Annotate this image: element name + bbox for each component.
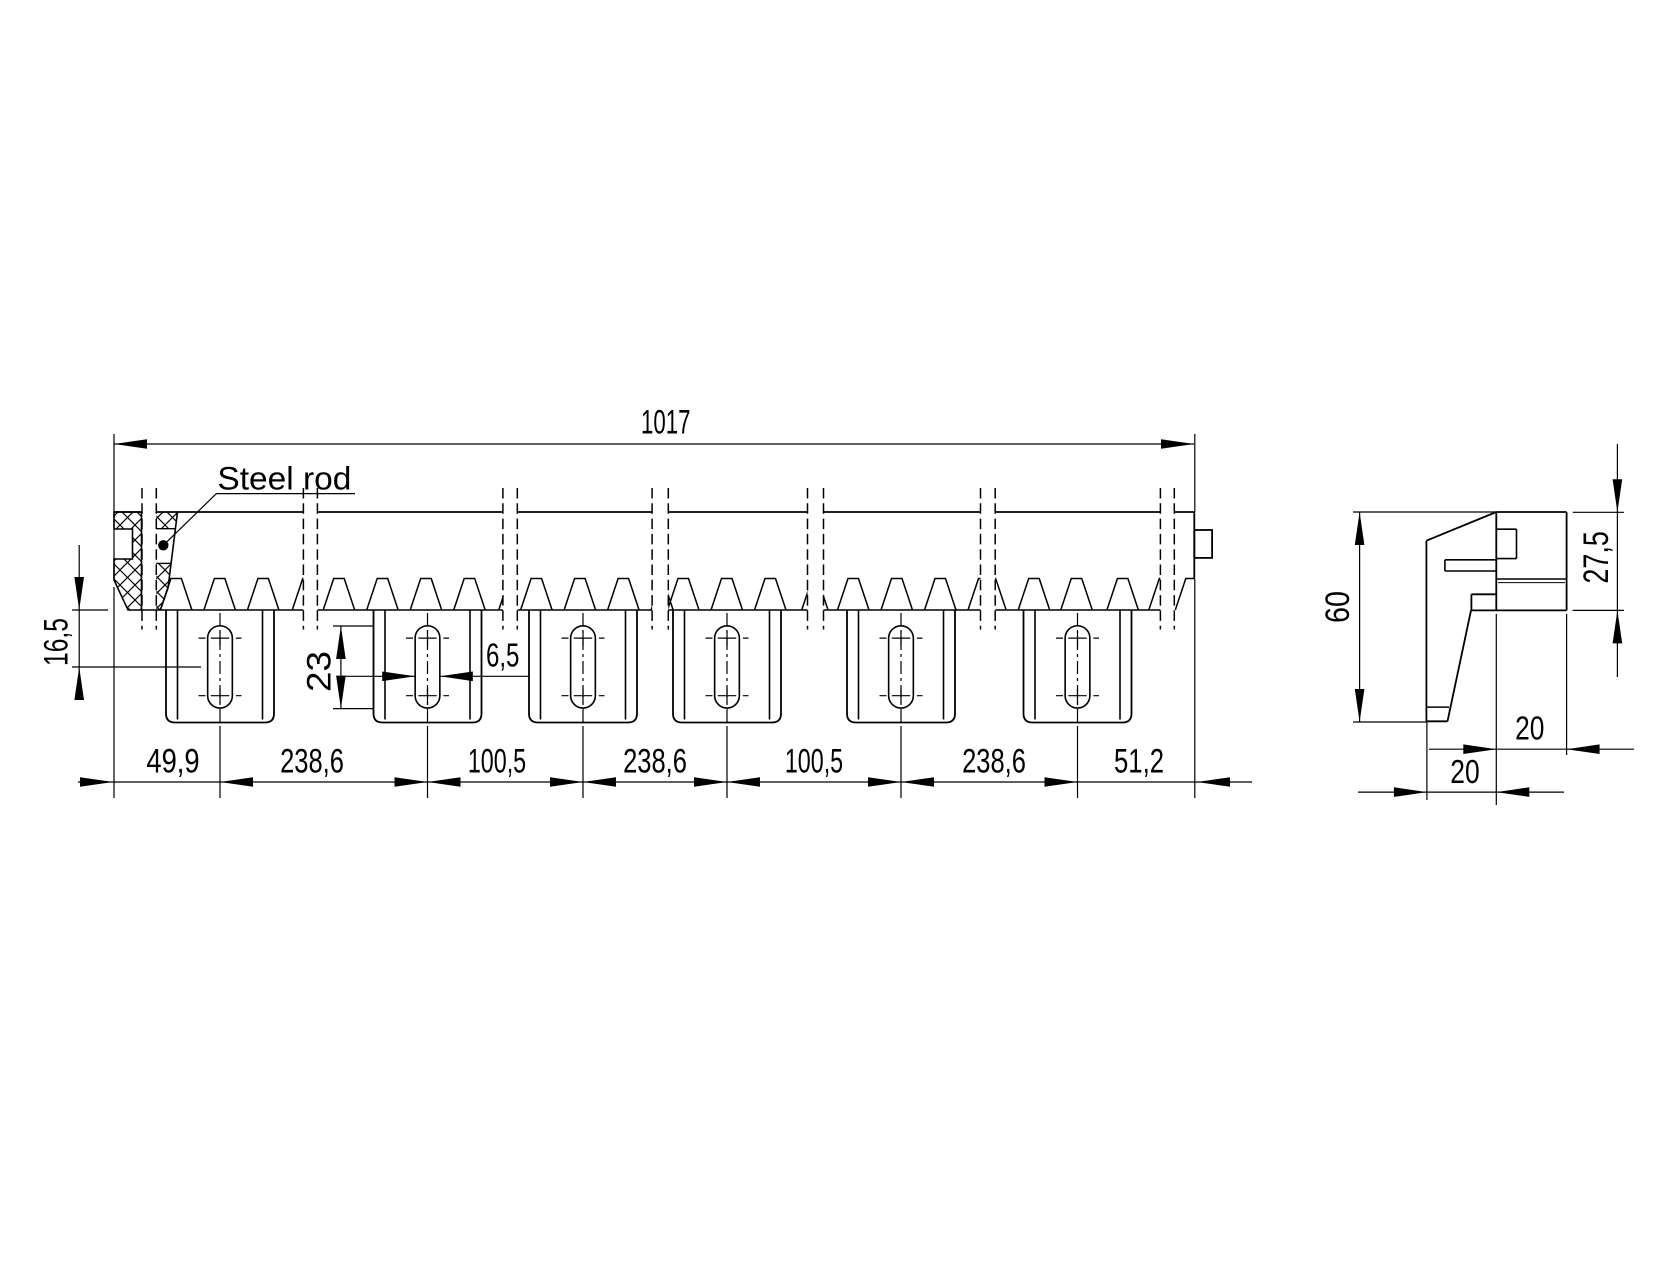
svg-text:16,5: 16,5 (38, 618, 76, 666)
svg-text:20: 20 (1450, 753, 1479, 790)
svg-text:1017: 1017 (641, 404, 691, 442)
svg-text:100,5: 100,5 (468, 743, 526, 781)
svg-text:6,5: 6,5 (486, 637, 519, 674)
svg-text:238,6: 238,6 (962, 743, 1026, 781)
svg-text:20: 20 (1515, 710, 1544, 747)
svg-text:100,5: 100,5 (785, 743, 843, 781)
svg-text:23: 23 (301, 651, 339, 692)
svg-text:Steel rod: Steel rod (217, 460, 351, 496)
svg-text:51,2: 51,2 (1114, 743, 1164, 781)
svg-text:60: 60 (1319, 591, 1357, 623)
svg-text:238,6: 238,6 (280, 743, 344, 781)
svg-text:238,6: 238,6 (623, 743, 687, 781)
svg-text:27,5: 27,5 (1577, 531, 1616, 584)
svg-text:49,9: 49,9 (146, 743, 199, 781)
